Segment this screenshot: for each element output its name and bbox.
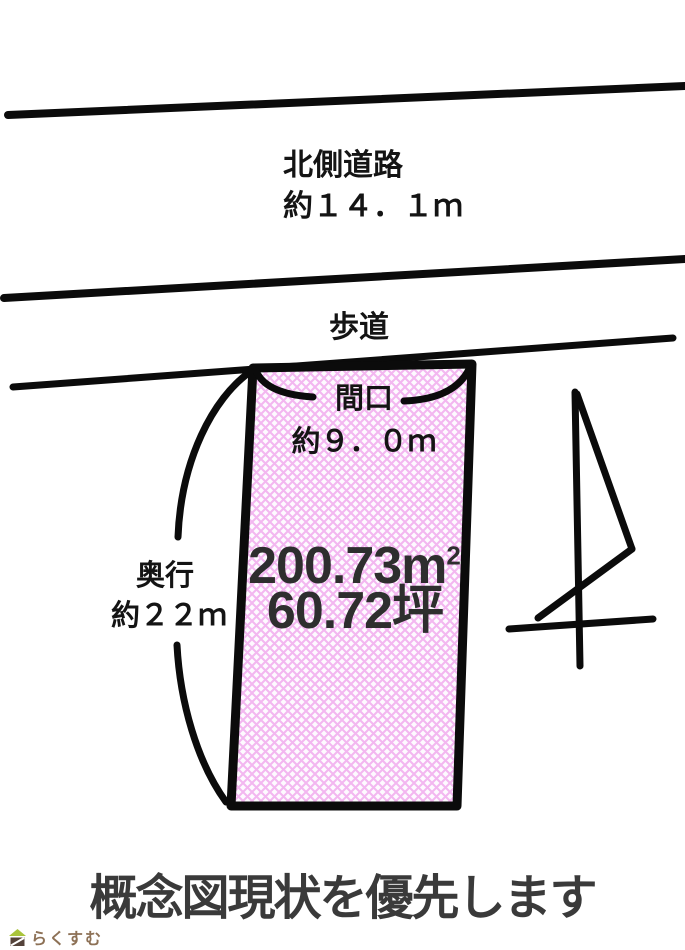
north-road-label: 北側道路 約１４．１ｍ (283, 146, 463, 227)
site-plan-canvas: 北側道路 約１４．１ｍ 歩道 間口 約９．０ｍ 奥行 約２２ｍ 200.73m2… (0, 0, 685, 950)
road-line-north-edge (8, 86, 685, 115)
sidewalk-label: 歩道 (329, 308, 389, 349)
logo-text: らくすむ (31, 925, 103, 949)
depth-label: 奥行 (136, 557, 194, 596)
disclaimer-text: 概念図現状を優先します (0, 858, 685, 928)
site-plan-drawing (0, 0, 685, 950)
logo: らくすむ (8, 925, 103, 949)
north-road-width: 約１４．１ｍ (283, 187, 463, 228)
north-arrow-crossbar (509, 619, 653, 629)
road-line-south-edge (4, 259, 685, 298)
area-tsubo: 60.72坪 (267, 585, 443, 637)
house-roof (9, 929, 26, 936)
north-arrow-flag-return (538, 549, 632, 618)
frontage-value: 約９．０ｍ (291, 423, 436, 462)
frontage-label: 間口 (335, 380, 393, 419)
depth-value: 約２２ｍ (111, 597, 227, 636)
house-icon (8, 928, 27, 947)
north-arrow-icon (509, 392, 653, 666)
depth-arc-upper (178, 372, 250, 537)
north-road-name: 北側道路 (283, 146, 463, 187)
depth-arc-lower (177, 645, 226, 802)
north-arrow-flag-edge (577, 394, 632, 549)
area-exponent: 2 (446, 541, 459, 571)
